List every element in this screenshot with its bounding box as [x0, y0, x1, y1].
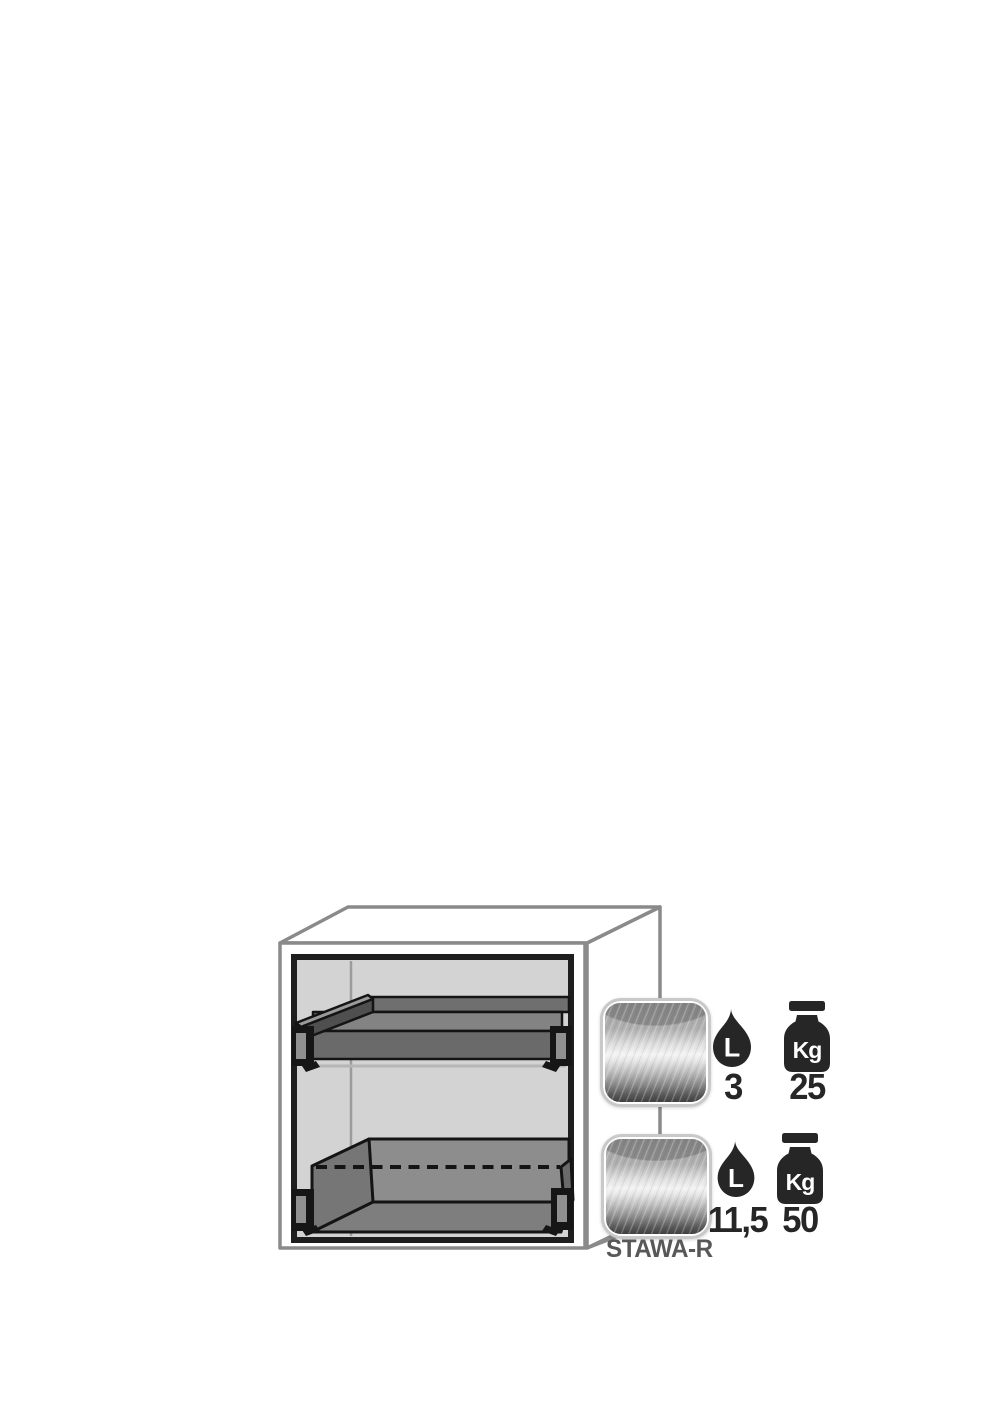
sump-volume-value: 11,5: [692, 1202, 783, 1238]
volume-unit-label: L: [728, 1163, 744, 1193]
droplet-icon: L: [712, 1006, 752, 1068]
model-label: STAWA-R: [606, 1237, 713, 1262]
volume-unit-label: L: [724, 1033, 741, 1063]
cabinet-cutaway-illustration: [0, 0, 1004, 1409]
sump-load-value: 50: [772, 1202, 828, 1238]
droplet-icon: L: [715, 1138, 757, 1198]
shelf-volume-value: 3: [705, 1069, 761, 1105]
shelf-load-value: 25: [779, 1069, 835, 1105]
load-unit-label: Kg: [793, 1037, 822, 1063]
load-unit-label: Kg: [786, 1169, 815, 1195]
shelf-level-badge: [600, 998, 711, 1107]
weight-icon: Kg: [777, 1133, 823, 1204]
spec-illustration-page: L 3 Kg 25 L 11,5 Kg 50 STAWA-R: [0, 0, 1004, 1409]
shelf-level-badge-face: [605, 1003, 706, 1102]
weight-icon: Kg: [784, 1001, 830, 1072]
bottom-sump-tray: [312, 1139, 573, 1232]
